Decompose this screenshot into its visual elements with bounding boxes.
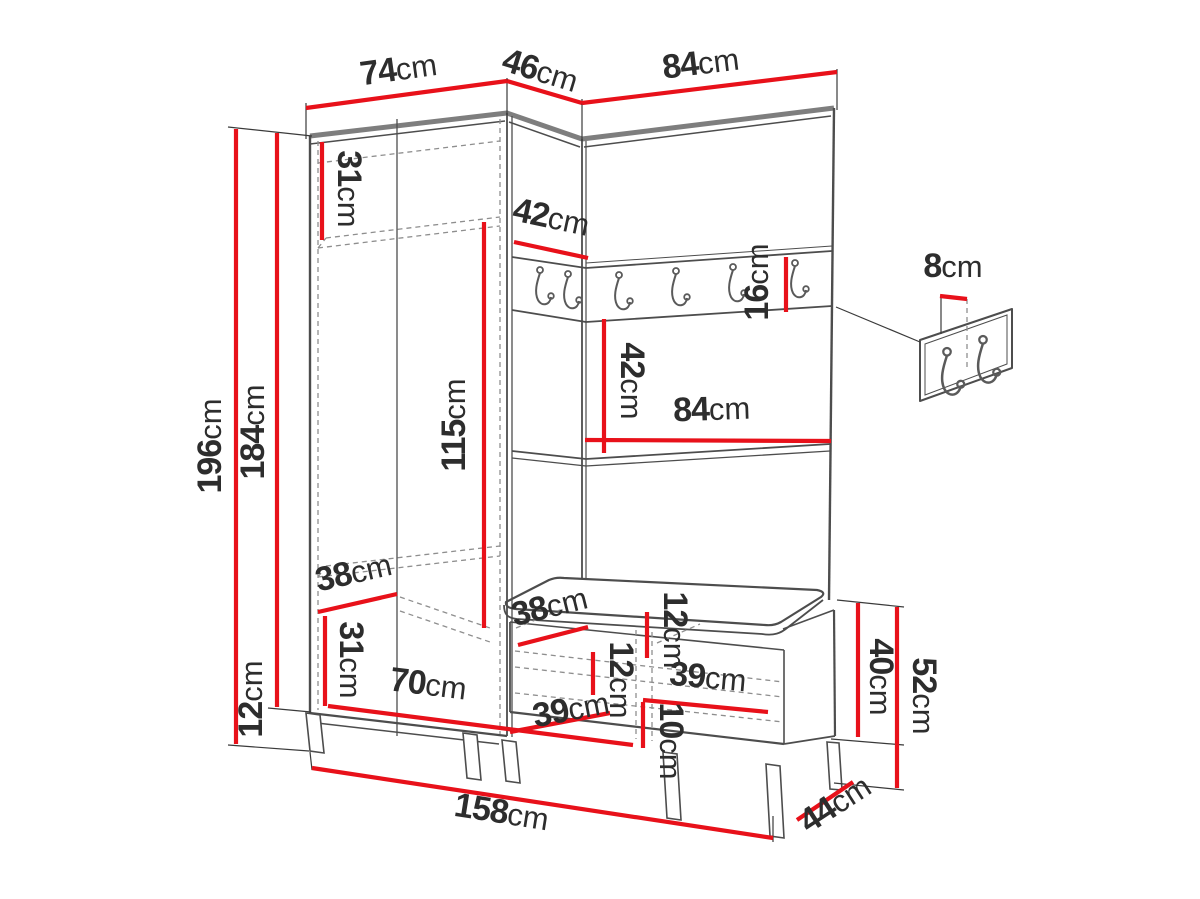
coat-hook-icon — [536, 267, 554, 304]
detail-panel-inner — [925, 315, 1007, 395]
leg — [306, 713, 324, 753]
dim-label-38cm-wardrobe: 38cm — [312, 545, 396, 599]
ext-40-bottom — [831, 739, 904, 745]
dim-label-12cm-legs: 12cm — [232, 660, 270, 737]
furniture-dimension-diagram: 74cm 46cm 84cm 196cm 184cm 12cm 31cm 42c… — [0, 0, 1200, 899]
dim-label-10cm: 10cm — [652, 702, 690, 779]
coat-hook-icon — [791, 260, 809, 297]
dim-line-42cm-corner — [514, 242, 588, 258]
dim-label-74cm: 74cm — [358, 45, 440, 93]
leg — [463, 733, 481, 780]
rail-top-corner — [512, 257, 586, 268]
ext-bench-top — [837, 600, 904, 607]
dim-label-70cm: 70cm — [388, 661, 469, 708]
coat-hook-icon — [564, 271, 582, 308]
ext-196-bottom — [228, 745, 309, 751]
dim-label-42cm-mid: 42cm — [613, 342, 651, 419]
dim-label-42cm-corner: 42cm — [510, 191, 593, 244]
dim-label-31cm-top: 31cm — [330, 150, 368, 227]
ext-184-bottom — [268, 708, 311, 712]
rail-bottom-corner — [512, 310, 586, 322]
dim-label-115cm: 115cm — [435, 378, 473, 471]
dim-label-52cm: 52cm — [905, 657, 943, 734]
dim-label-16cm: 16cm — [738, 243, 776, 320]
dim-label-31cm-bottom: 31cm — [332, 621, 370, 698]
dim-label-84cm-shelf: 84cm — [672, 389, 750, 430]
bench-side-top — [783, 610, 834, 629]
ext-158-left — [310, 752, 312, 770]
dim-label-39cm-right: 39cm — [668, 655, 748, 700]
dim-line-84cm-shelf — [585, 440, 831, 441]
dash-top-shelf-front — [318, 226, 500, 248]
hook-panel-detail — [920, 309, 1012, 401]
dim-label-39cm-left: 39cm — [529, 683, 612, 735]
coat-hook-icon — [615, 272, 633, 309]
dim-label-8cm: 8cm — [923, 247, 982, 285]
dim-label-184cm: 184cm — [234, 384, 272, 479]
leg — [766, 764, 784, 838]
dash-depth-1 — [400, 597, 490, 628]
diagram-canvas: 74cm 46cm 84cm 196cm 184cm 12cm 31cm 42c… — [0, 0, 1200, 899]
shelf-top — [512, 444, 830, 459]
detail-panel-outer — [920, 309, 1012, 401]
leg — [502, 740, 520, 783]
top-edge-inner-right — [584, 116, 831, 147]
dim-line-8cm — [940, 296, 967, 299]
ext-height-top — [228, 127, 312, 136]
detail-leader-line — [836, 307, 920, 342]
dim-label-38cm-bench: 38cm — [507, 579, 591, 635]
coat-hook-icon — [672, 268, 690, 305]
panel-right-edge — [829, 108, 834, 600]
bench-back-right-edge — [834, 610, 835, 736]
dim-label-196cm: 196cm — [191, 398, 229, 493]
dim-label-158cm: 158cm — [452, 786, 552, 838]
dash-depth-2 — [400, 611, 490, 642]
dim-label-84cm-top: 84cm — [660, 40, 741, 87]
dim-label-40cm: 40cm — [862, 638, 900, 715]
